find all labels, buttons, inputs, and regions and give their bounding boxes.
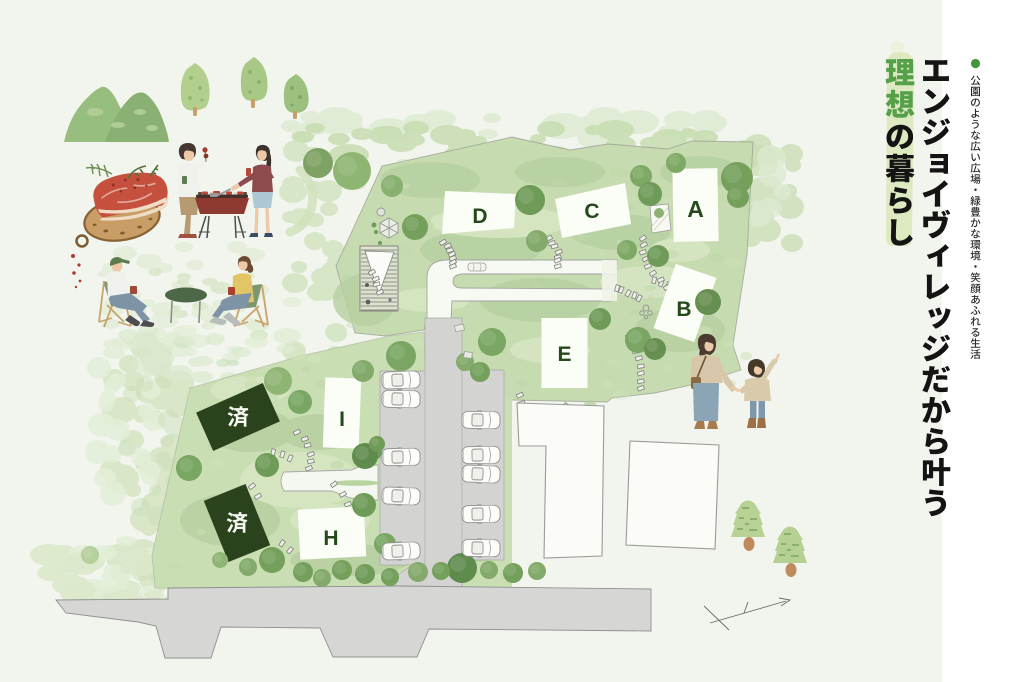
svg-text:B: B xyxy=(676,298,691,321)
svg-text:I: I xyxy=(339,408,345,431)
svg-text:D: D xyxy=(472,205,487,228)
svg-text:C: C xyxy=(584,200,599,223)
svg-text:E: E xyxy=(557,343,571,366)
svg-text:A: A xyxy=(687,196,704,222)
svg-text:H: H xyxy=(323,527,338,550)
